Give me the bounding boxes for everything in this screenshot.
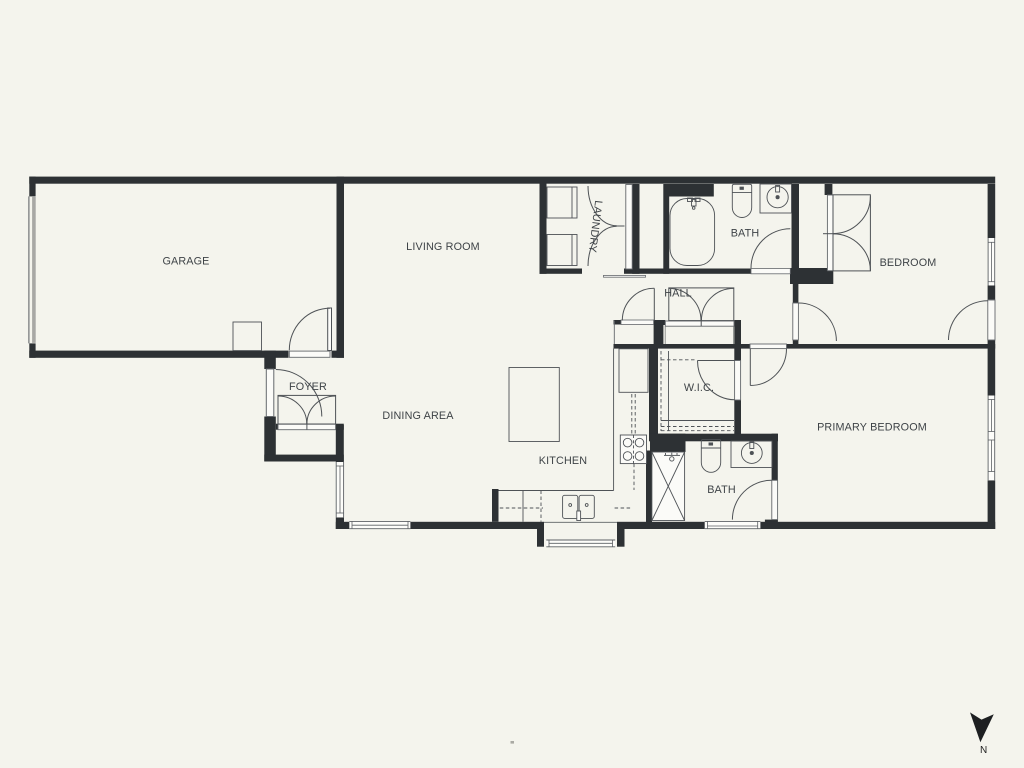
svg-text:HALL: HALL	[664, 288, 692, 300]
svg-text:LIVING ROOM: LIVING ROOM	[406, 241, 480, 253]
svg-text:FOYER: FOYER	[289, 381, 327, 393]
svg-text:GARAGE: GARAGE	[162, 256, 209, 268]
svg-text:DINING AREA: DINING AREA	[382, 410, 454, 422]
svg-text:KITCHEN: KITCHEN	[539, 455, 587, 467]
svg-text:W.I.C.: W.I.C.	[684, 382, 714, 394]
svg-text:BEDROOM: BEDROOM	[880, 257, 937, 269]
svg-text:PRIMARY BEDROOM: PRIMARY BEDROOM	[817, 422, 927, 434]
svg-text:BATH: BATH	[731, 228, 760, 240]
svg-text:BATH: BATH	[707, 484, 736, 496]
svg-text:N: N	[980, 745, 987, 756]
